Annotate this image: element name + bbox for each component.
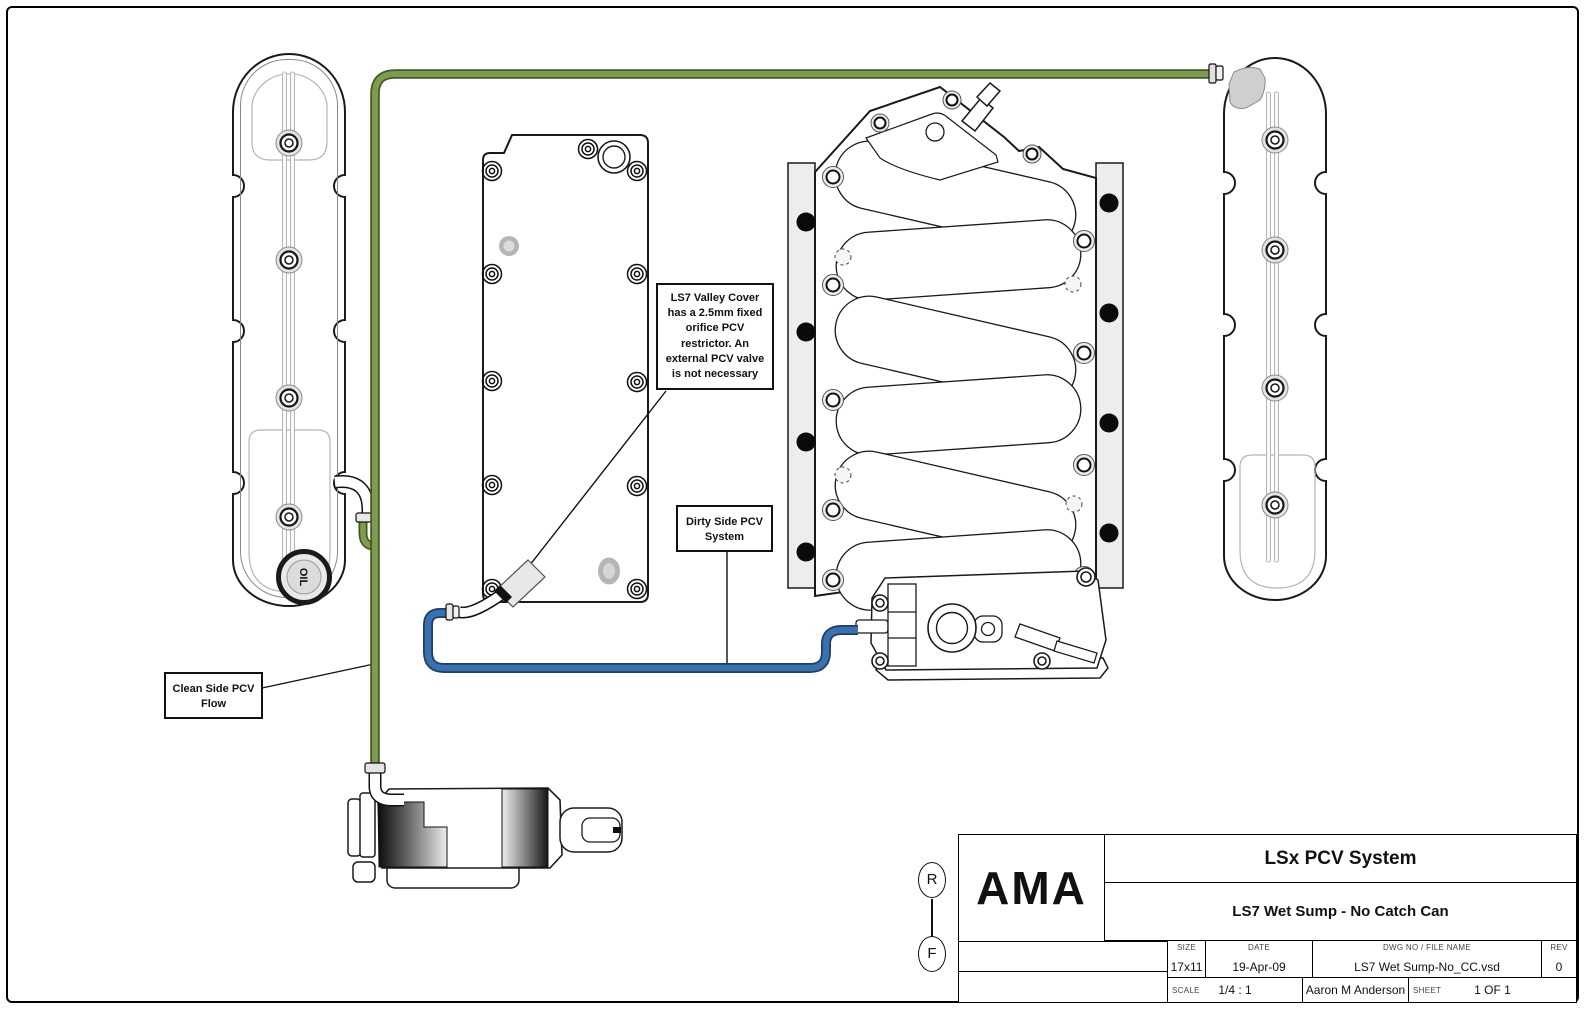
author-name: Aaron M Anderson — [1303, 983, 1408, 997]
clean-side-leader — [262, 664, 374, 688]
date-value: 19-Apr-09 — [1206, 960, 1312, 974]
drawing-subtitle: LS7 Wet Sump - No Catch Can — [1104, 882, 1577, 941]
dwg-cell: DWG NO / FILE NAME LS7 Wet Sump-No_CC.vs… — [1312, 940, 1542, 978]
drawing-title: LSx PCV System — [1104, 834, 1577, 883]
zone-marker-r: R — [918, 862, 946, 898]
scale-cell: SCALE 1/4 : 1 — [1167, 977, 1303, 1003]
titleblock-empty-cell — [958, 941, 1168, 972]
oil-cap-label: OIL — [297, 568, 309, 587]
scale-value: 1/4 : 1 — [1168, 983, 1302, 997]
pcv-nipple-manifold — [856, 620, 888, 633]
date-cell: DATE 19-Apr-09 — [1205, 940, 1313, 978]
author-cell: Aaron M Anderson — [1302, 977, 1409, 1003]
company-logo: AMA — [958, 834, 1105, 942]
throttle-body — [856, 568, 1108, 680]
drawing-sheet: OIL — [0, 0, 1585, 1009]
manifold-top-fitting — [962, 83, 1000, 131]
valley-cover — [483, 135, 649, 602]
rev-value: 0 — [1542, 960, 1576, 974]
dirty-side-label: Dirty Side PCV System — [676, 505, 773, 552]
size-value: 17x11 — [1168, 960, 1205, 974]
rev-cell: REV 0 — [1541, 940, 1577, 978]
oil-fill-cap: OIL — [279, 552, 330, 603]
hose-clamp — [365, 763, 385, 773]
titleblock-empty-cell — [958, 971, 1168, 1003]
zone-marker-connector — [931, 899, 933, 937]
clean-side-label: Clean Side PCV Flow — [164, 672, 263, 719]
valley-cover-note: LS7 Valley Cover has a 2.5mm fixed orifi… — [656, 283, 774, 390]
intake-manifold — [788, 83, 1123, 680]
zone-marker-f: F — [918, 936, 946, 972]
size-cell: SIZE 17x11 — [1167, 940, 1206, 978]
sheet-value: 1 OF 1 — [1409, 983, 1576, 997]
size-label: SIZE — [1168, 943, 1205, 952]
sheet-cell: SHEET 1 OF 1 — [1408, 977, 1577, 1003]
dirty-side-hose — [428, 604, 858, 668]
dwg-label: DWG NO / FILE NAME — [1313, 943, 1541, 952]
dwg-value: LS7 Wet Sump-No_CC.vsd — [1313, 960, 1541, 974]
rev-label: REV — [1542, 943, 1576, 952]
date-label: DATE — [1206, 943, 1312, 952]
